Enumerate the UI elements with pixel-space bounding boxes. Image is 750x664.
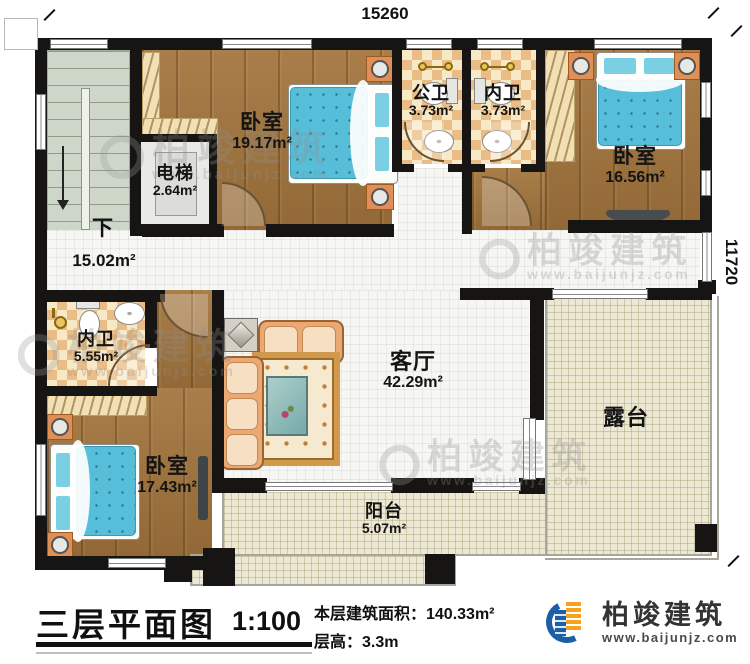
logo-building-orange <box>566 602 581 632</box>
room-name: 公卫 <box>398 84 464 103</box>
title-underline <box>36 642 312 647</box>
watermark-block: 柏竣建筑 www.baijunjz.com <box>527 234 693 283</box>
room-name: 电梯 <box>131 164 219 183</box>
towel-knob <box>418 62 427 71</box>
room-area: 16.56m² <box>565 169 705 186</box>
coffee-table <box>266 376 308 436</box>
lamp-icon <box>51 418 69 436</box>
dimension-tick <box>727 555 739 567</box>
sofa-cushion <box>226 398 258 430</box>
watermark-text: 柏竣建筑 <box>427 440 593 475</box>
room-name: 客厅 <box>358 350 468 374</box>
floor-height-text: 层高：3.3m <box>314 628 398 652</box>
lamp-icon <box>371 60 389 78</box>
room-name: 卧室 <box>112 456 222 479</box>
bed-pillow <box>642 56 678 76</box>
dimension-tick <box>707 7 719 19</box>
room-area: 2.64m² <box>131 183 219 198</box>
towel-knob <box>506 62 515 71</box>
room-area: 19.17m² <box>197 135 327 152</box>
sliding-door-balcony <box>265 482 393 491</box>
nightstand <box>366 56 394 82</box>
watermark-text: 柏竣建筑 <box>527 234 693 269</box>
shower-stem <box>52 308 55 318</box>
window <box>108 558 166 568</box>
nightstand <box>366 184 394 210</box>
room-area: 17.43m² <box>112 479 222 496</box>
room-area: 3.73m² <box>398 103 464 118</box>
room-area: 42.29m² <box>358 374 468 391</box>
brand-text: 柏竣建筑 www.baijunjz.com <box>602 601 738 644</box>
room-label-elevator: 电梯 2.64m² <box>131 164 219 199</box>
room-name: 阳台 <box>338 502 430 521</box>
room-area: 15.02m² <box>44 252 164 270</box>
wall-bath-bottom <box>521 164 545 172</box>
corner-post <box>164 558 192 582</box>
bed-top-right <box>596 52 684 148</box>
nightstand <box>47 532 73 558</box>
watermark: 柏竣建筑 www.baijunjz.com <box>379 440 592 489</box>
nightstand <box>47 414 73 440</box>
wardrobe-strip-1 <box>142 52 160 120</box>
stair-arrow-head <box>57 200 69 210</box>
window <box>50 39 108 49</box>
wall-bath-bottom <box>398 164 414 172</box>
room-area: 5.07m² <box>338 521 430 536</box>
watermark: 柏竣建筑 www.baijunjz.com <box>479 234 692 283</box>
wall-bath5-bottom <box>35 386 157 396</box>
room-name: 内卫 <box>46 330 146 349</box>
bed-pillow <box>602 56 638 76</box>
wall-entry-vertical <box>462 168 472 234</box>
room-name: 卧室 <box>565 146 705 169</box>
lamp-icon <box>572 57 590 75</box>
stair-down-label: 下 <box>92 212 113 242</box>
brand-logo: 柏竣建筑 www.baijunjz.com <box>546 598 738 648</box>
plan-scale: 1:100 <box>232 606 301 637</box>
wall-right-upper <box>700 38 712 230</box>
brand-url: www.baijunjz.com <box>602 630 738 645</box>
room-name: 露台 <box>580 406 672 430</box>
brand-name: 柏竣建筑 <box>602 601 738 629</box>
brand-logo-icon <box>546 598 594 648</box>
dimension-tick <box>730 25 742 37</box>
corner-post <box>425 554 455 584</box>
room-label-bedroom-top-left: 卧室 19.17m² <box>197 112 327 152</box>
window <box>594 39 682 49</box>
sink-icon <box>114 302 145 325</box>
plan-title: 三层平面图 <box>36 598 216 646</box>
window <box>702 232 712 282</box>
window <box>477 39 523 49</box>
shower-head-icon <box>54 316 67 329</box>
towel-knob <box>480 62 489 71</box>
window <box>701 82 711 118</box>
title-block: 三层平面图 1:100 本层建筑面积：140.33m² 层高：3.3m 柏竣建筑… <box>0 594 750 664</box>
lamp-icon <box>678 57 696 75</box>
hallway-floor-upper <box>398 168 462 230</box>
dimension-top: 15260 <box>340 4 430 24</box>
window <box>406 39 452 49</box>
watermark-url: www.baijunjz.com <box>427 473 593 489</box>
title-underline-thin <box>36 652 312 654</box>
sofa-cushion <box>226 434 258 466</box>
room-label-living-room: 客厅 42.29m² <box>358 350 468 391</box>
lamp-icon <box>371 188 389 206</box>
floor-plan-page: 15260 11720 卧室 19.17m² 电梯 2.64m² 公卫 3.73… <box>0 0 750 664</box>
bed-pillow <box>54 451 72 489</box>
bed-pillow <box>373 135 391 173</box>
room-label-terrace: 露台 <box>580 406 672 430</box>
bed-pillow <box>54 494 72 532</box>
lamp-icon <box>51 536 69 554</box>
room-label-balcony: 阳台 5.07m² <box>338 502 430 537</box>
watermark-url: www.baijunjz.com <box>67 364 238 380</box>
window <box>222 39 312 49</box>
room-name: 内卫 <box>468 84 538 103</box>
wall-bath-bottom <box>471 164 485 172</box>
watermark-logo-icon <box>379 444 419 484</box>
stair-center-rail <box>81 88 90 230</box>
nightstand <box>674 52 700 80</box>
window <box>36 444 46 516</box>
stair-arrow-line <box>62 146 64 202</box>
floor-area-text: 本层建筑面积：140.33m² <box>314 600 495 624</box>
logo-building-blue <box>555 610 566 636</box>
dimension-right: 11720 <box>721 227 741 297</box>
watermark-logo-icon <box>479 238 519 278</box>
corner-post <box>203 548 235 586</box>
nightstand <box>568 52 594 80</box>
bed-pillow <box>373 91 391 129</box>
room-area: 5.55m² <box>46 349 146 364</box>
towel-knob <box>444 62 453 71</box>
watermark-block: 柏竣建筑 www.baijunjz.com <box>427 440 593 489</box>
room-label-bath-inner-bottom: 内卫 5.55m² <box>46 330 146 365</box>
window <box>36 94 46 150</box>
dimension-tick <box>43 9 55 21</box>
room-label-bedroom-top-right: 卧室 16.56m² <box>565 146 705 186</box>
floor-plan-drawing: 15260 11720 卧室 19.17m² 电梯 2.64m² 公卫 3.73… <box>0 0 750 596</box>
room-name: 卧室 <box>197 112 327 135</box>
room-area: 3.73m² <box>468 103 538 118</box>
wall-bedroom2-bottom <box>568 220 712 233</box>
watermark-url: www.baijunjz.com <box>527 267 693 283</box>
room-label-bath-inner-top: 内卫 3.73m² <box>468 84 538 119</box>
room-label-bedroom-bottom-left: 卧室 17.43m² <box>112 456 222 496</box>
wall-living-terrace <box>530 298 544 420</box>
room-label-bath-public: 公卫 3.73m² <box>398 84 464 119</box>
elevator-door <box>163 216 189 224</box>
wall-bedroom1-bottom-right <box>266 224 394 237</box>
legend-box <box>4 18 38 50</box>
room-label-hallway: 15.02m² <box>44 252 164 270</box>
